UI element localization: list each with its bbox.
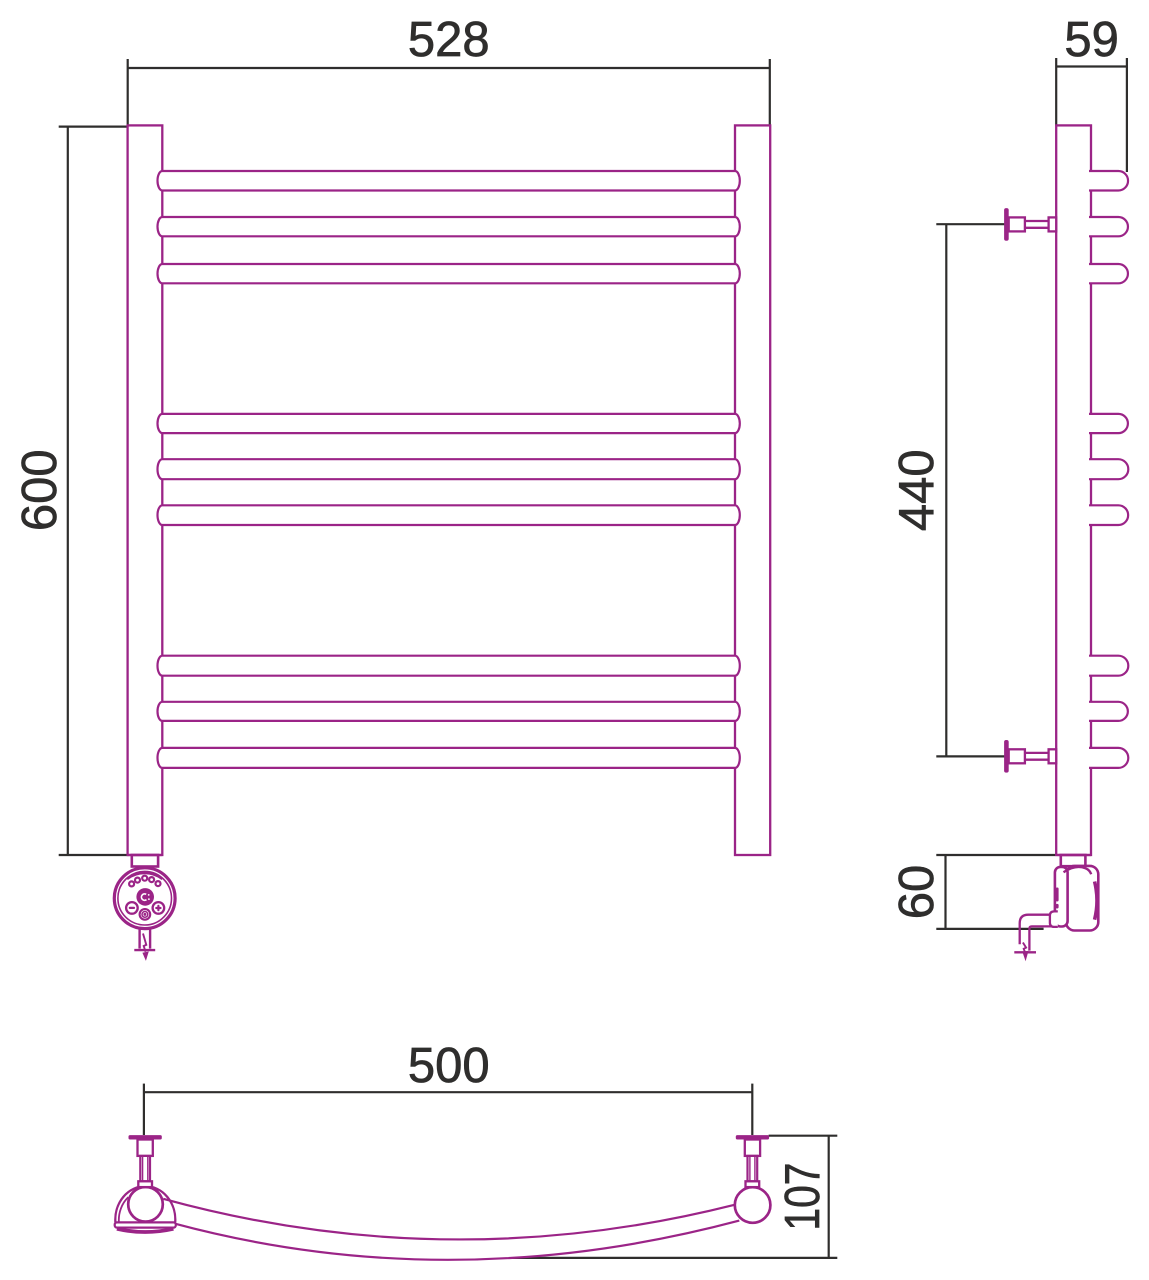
svg-text:59: 59 <box>1064 13 1119 67</box>
svg-text:500: 500 <box>408 1039 490 1093</box>
svg-text:107: 107 <box>776 1163 830 1231</box>
svg-text:60: 60 <box>890 865 944 920</box>
svg-text:440: 440 <box>890 449 944 531</box>
svg-text:528: 528 <box>408 13 490 67</box>
svg-text:600: 600 <box>13 449 67 531</box>
